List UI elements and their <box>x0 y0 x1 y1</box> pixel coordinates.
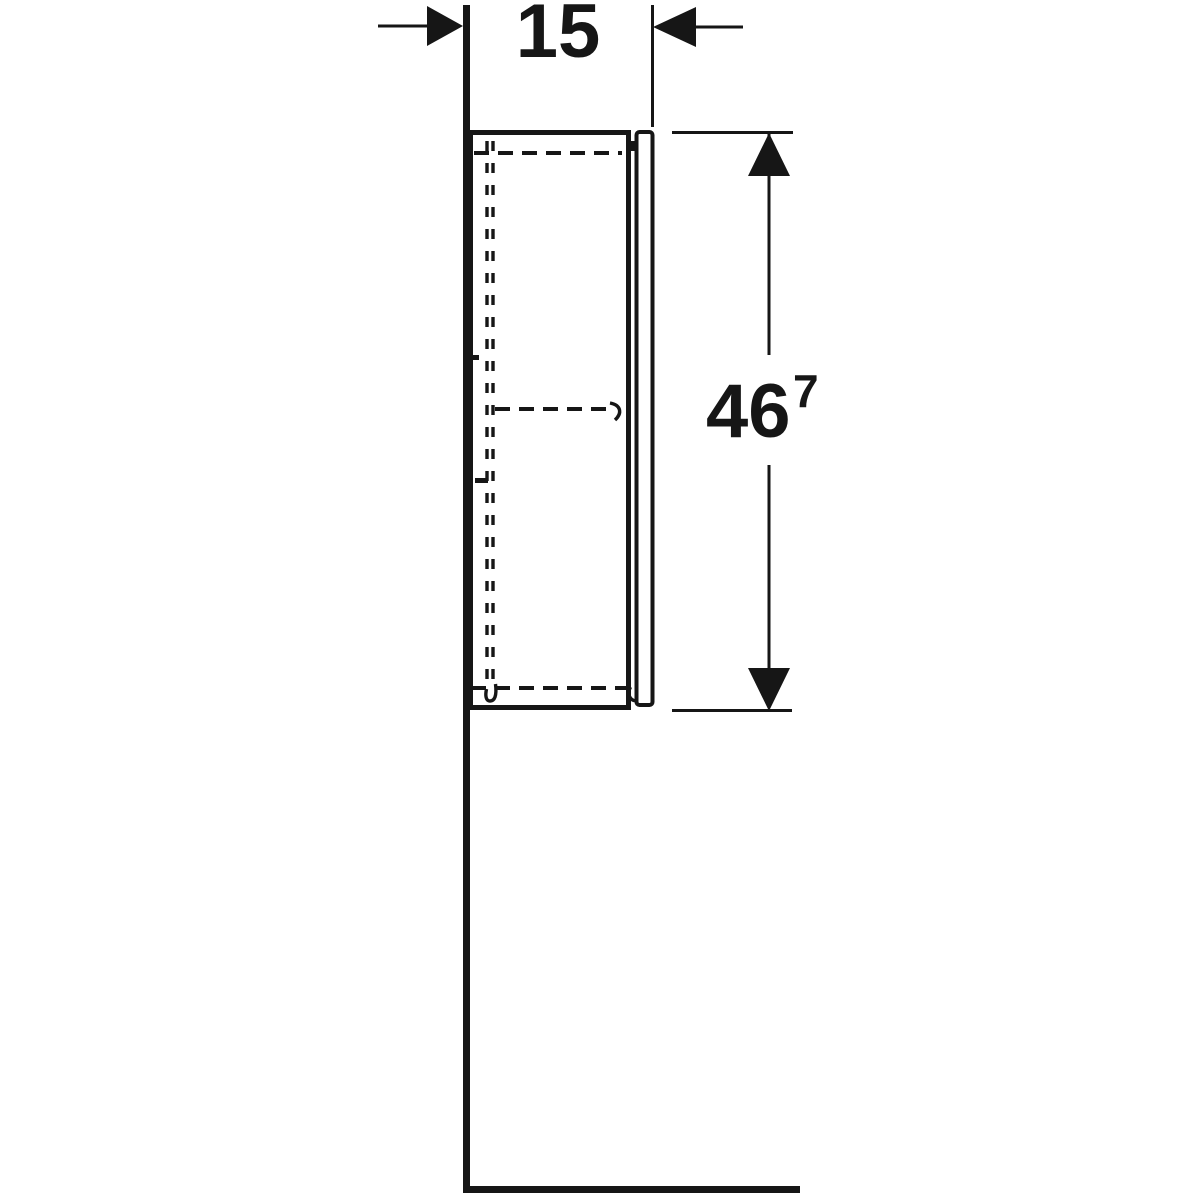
width-dim-arrow-right <box>653 7 696 47</box>
height-dim-arrow-up <box>748 133 790 176</box>
mount-bracket-tick-upper <box>466 355 479 360</box>
hidden-back-edge-bottom-hook <box>486 684 496 701</box>
door-panel-outline <box>637 132 653 705</box>
height-dim-label: 46 <box>706 369 791 454</box>
shelf-end-hook <box>610 403 620 420</box>
height-dim-extension-top <box>672 131 793 134</box>
width-dim-tail-left <box>378 25 428 28</box>
height-dim-extension-bottom <box>672 709 792 712</box>
cabinet-side-view-drawing: 15 46 7 <box>0 0 1200 1200</box>
floor-line <box>463 1186 800 1193</box>
width-dim-tail-right <box>696 26 743 29</box>
width-dim-extension-line <box>651 5 654 127</box>
cabinet-body-outline <box>471 133 629 708</box>
technical-drawing-page: 15 46 7 <box>0 0 1200 1200</box>
height-dim-superscript: 7 <box>793 365 819 417</box>
width-dim-label: 15 <box>516 0 601 74</box>
door-top-hinge-mark <box>629 141 637 151</box>
height-dim-arrow-down <box>748 668 790 711</box>
height-dim-line-lower <box>768 465 771 669</box>
mount-bracket-tick-lower <box>475 478 488 483</box>
width-dim-arrow-left <box>427 6 463 46</box>
